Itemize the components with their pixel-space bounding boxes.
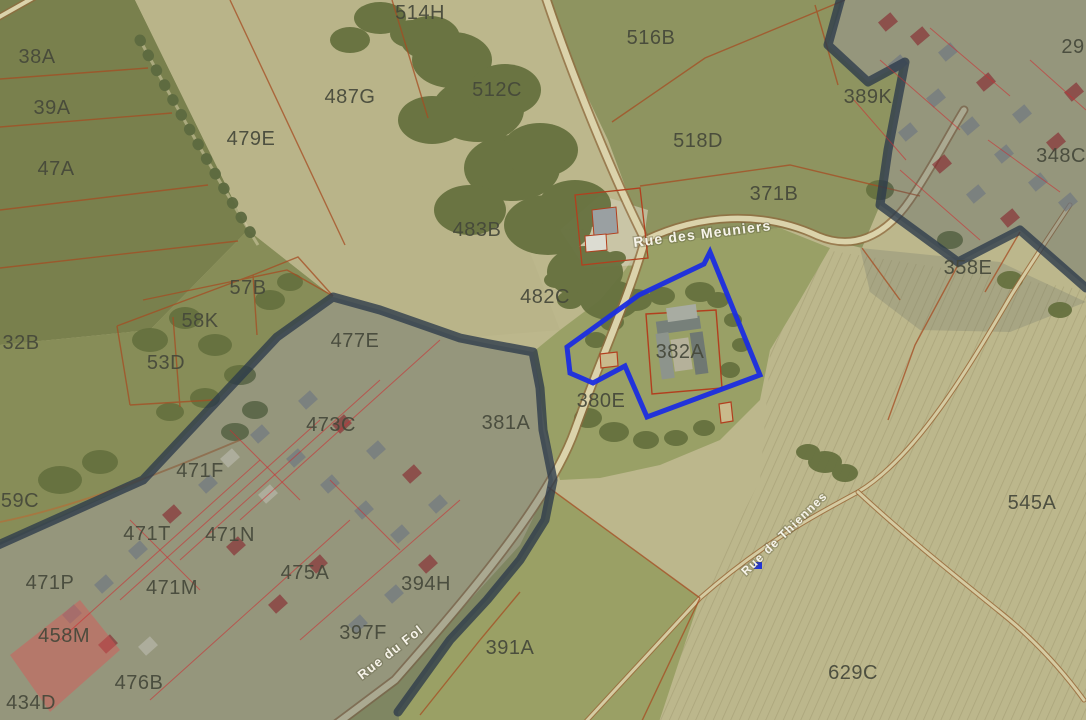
parcel-label-471F: 471F [176, 460, 224, 482]
parcel-label-381A: 381A [482, 412, 531, 434]
parcel-label-512C: 512C [472, 79, 522, 101]
parcel-label-348C: 348C [1036, 145, 1086, 167]
parcel-label-476B: 476B [115, 672, 164, 694]
parcel-label-482C: 482C [520, 286, 570, 308]
parcel-label-59C: 59C [1, 490, 39, 512]
parcel-label-473C: 473C [306, 414, 356, 436]
parcel-label-458M: 458M [38, 625, 90, 647]
parcel-label-471P: 471P [26, 572, 75, 594]
parcel-label-371B: 371B [750, 183, 799, 205]
parcel-label-382A: 382A [656, 341, 705, 363]
parcel-label-39A: 39A [33, 97, 70, 119]
parcel-label-471N: 471N [205, 524, 255, 546]
parcel-label-629C: 629C [828, 662, 878, 684]
parcel-label-389K: 389K [844, 86, 893, 108]
parcel-label-58K: 58K [181, 310, 218, 332]
parcel-label-32B: 32B [2, 332, 39, 354]
parcel-label-475A: 475A [281, 562, 330, 584]
parcel-label-477E: 477E [331, 330, 380, 352]
parcel-label-380E: 380E [577, 390, 626, 412]
parcel-label-514H: 514H [395, 2, 445, 24]
parcel-label-38A: 38A [18, 46, 55, 68]
parcel-label-29: 29 [1061, 36, 1084, 58]
parcel-label-391A: 391A [486, 637, 535, 659]
parcel-label-479E: 479E [227, 128, 276, 150]
map-canvas[interactable]: 38A39A47A479E487G514H512C516B518D483B482… [0, 0, 1086, 720]
parcel-label-434D: 434D [6, 692, 56, 714]
parcel-label-487G: 487G [325, 86, 376, 108]
parcel-label-516B: 516B [627, 27, 676, 49]
parcel-label-518D: 518D [673, 130, 723, 152]
parcel-label-471M: 471M [146, 577, 198, 599]
parcel-label-483B: 483B [453, 219, 502, 241]
parcel-label-397F: 397F [339, 622, 387, 644]
cadastral-map-view[interactable]: 38A39A47A479E487G514H512C516B518D483B482… [0, 0, 1086, 720]
parcel-label-57B: 57B [229, 277, 266, 299]
parcel-label-47A: 47A [37, 158, 74, 180]
parcel-label-545A: 545A [1008, 492, 1057, 514]
parcel-label-394H: 394H [401, 573, 451, 595]
parcel-label-358E: 358E [944, 257, 993, 279]
parcel-label-471T: 471T [123, 523, 171, 545]
parcel-label-53D: 53D [147, 352, 185, 374]
